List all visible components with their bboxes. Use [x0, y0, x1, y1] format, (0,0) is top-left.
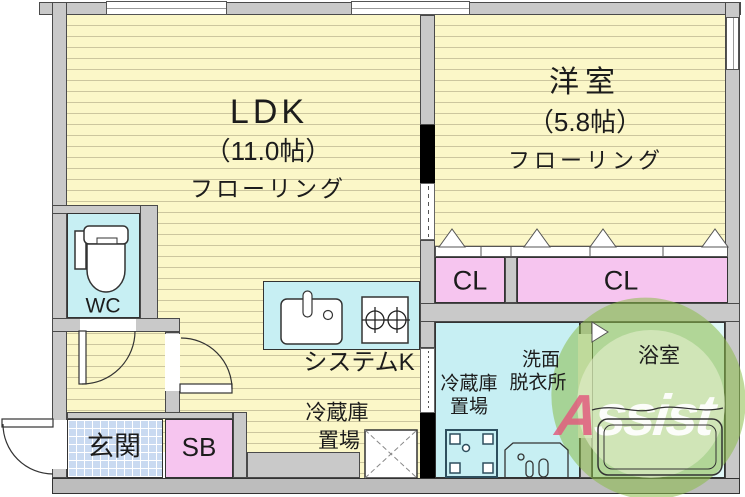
washroom-fridge-label-2: 置場: [450, 398, 488, 417]
floor-plan: Assist: [0, 0, 745, 497]
ldk-size-label: （11.0帖）: [205, 138, 332, 164]
entrance-door-icon: [2, 419, 53, 474]
closet-left-label: CL: [453, 268, 488, 295]
closet-door-markers: [439, 229, 728, 247]
closet-right-label: CL: [604, 268, 639, 295]
fridge-space-hall-label-2: 置場: [318, 431, 360, 452]
shoe-box-label: SB: [182, 434, 217, 460]
stove-icon: [362, 297, 410, 343]
washroom-name-label-1: 洗面: [522, 351, 560, 370]
washroom-fridge-label-1: 冷蔵庫: [440, 375, 497, 394]
western-room-flooring-label: フローリング: [508, 150, 664, 172]
bathtub-icon: [592, 407, 723, 475]
kitchen-sink-icon: [281, 291, 342, 344]
fridge-space-hall-label-1: 冷蔵庫: [306, 403, 369, 424]
wc-door-icon: [79, 331, 135, 384]
toilet-icon: [75, 226, 128, 292]
western-room-name-label: 洋室: [549, 68, 621, 98]
kitchen-label: システムK: [303, 351, 414, 375]
ldk-name-label: LDK: [230, 95, 308, 129]
plan-line-art: [0, 0, 745, 497]
wc-label: WC: [86, 296, 121, 317]
washing-machine-pan-icon: [446, 430, 497, 477]
closet-track-dividers: [481, 246, 663, 257]
entrance-label: 玄関: [87, 434, 141, 461]
ldk-flooring-label: フローリング: [190, 178, 346, 201]
bath-door-marker: [592, 322, 608, 342]
fridge-space-box: [365, 430, 417, 478]
western-room-size-label: （5.8帖）: [528, 109, 642, 135]
washroom-name-label-2: 脱衣所: [509, 374, 566, 393]
ldk-door-icon: [180, 338, 232, 393]
vanity-sink-icon: [505, 443, 568, 478]
bathroom-label: 浴室: [638, 346, 680, 367]
